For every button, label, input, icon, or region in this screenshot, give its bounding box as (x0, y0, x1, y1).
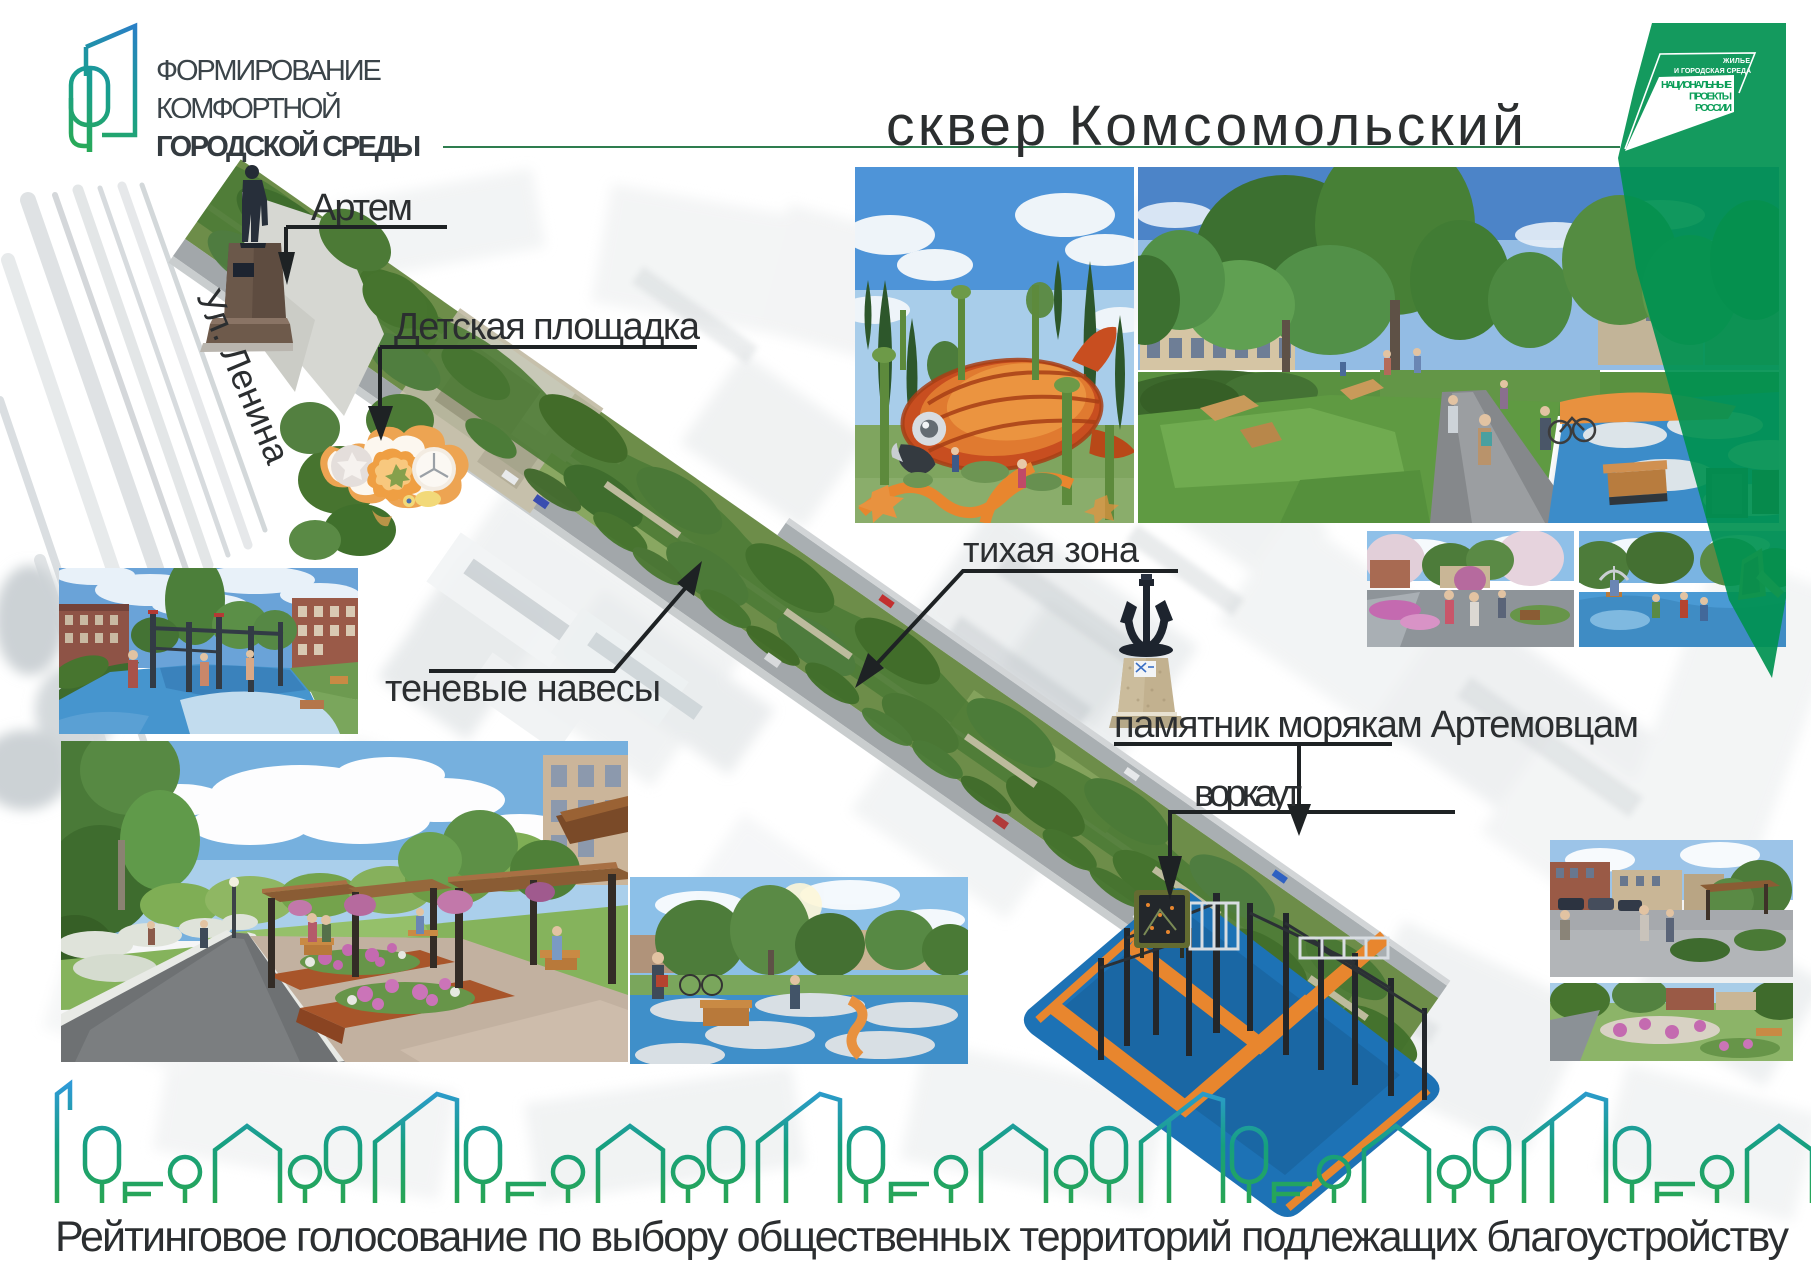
svg-text:ПРОЕКТЫ: ПРОЕКТЫ (1689, 91, 1732, 103)
svg-text:Детская площадка: Детская площадка (394, 306, 701, 348)
svg-text:ГОРОДСКОЙ СРЕДЫ: ГОРОДСКОЙ СРЕДЫ (156, 129, 422, 163)
svg-text:ЖИЛЬЕ: ЖИЛЬЕ (1722, 58, 1750, 65)
svg-text:РОССИИ: РОССИИ (1695, 102, 1732, 114)
svg-text:КОМФОРТНОЙ: КОМФОРТНОЙ (156, 91, 343, 125)
svg-text:воркаут: воркаут (1194, 773, 1302, 815)
svg-text:И ГОРОДСКАЯ СРЕДА: И ГОРОДСКАЯ СРЕДА (1674, 68, 1751, 75)
svg-text:ФОРМИРОВАНИЕ: ФОРМИРОВАНИЕ (156, 55, 383, 87)
svg-text:памятник морякам Артемовцам: памятник морякам Артемовцам (1114, 704, 1639, 746)
svg-text:тихая зона: тихая зона (963, 529, 1140, 570)
svg-text:теневые навесы: теневые навесы (385, 668, 661, 710)
svg-text:сквер Комсомольский: сквер Комсомольский (886, 94, 1525, 158)
svg-text:Артем: Артем (311, 187, 413, 229)
svg-text:Рейтинговое голосование по выб: Рейтинговое голосование по выбору общест… (55, 1213, 1789, 1261)
svg-text:НАЦИОНАЛЬНЫЕ: НАЦИОНАЛЬНЫЕ (1661, 79, 1732, 91)
